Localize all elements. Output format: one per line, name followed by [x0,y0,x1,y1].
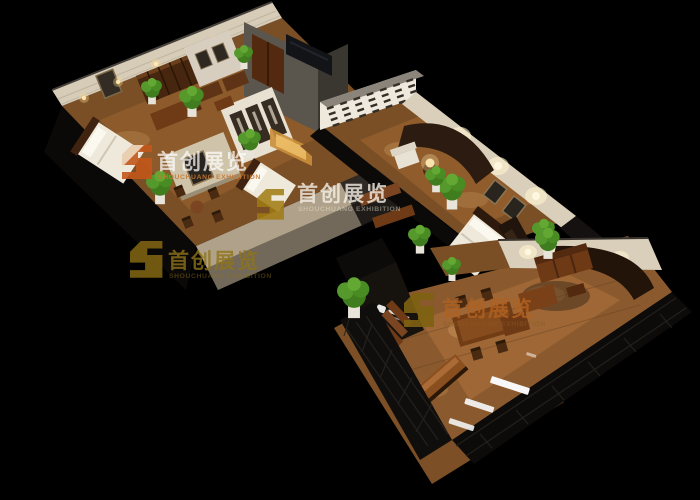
watermark-cn-text: 首创展览 [442,297,534,321]
watermark-lower-center: 首创展览 SHOUCHUANG EXHIBITION [404,293,546,328]
watermark-cn-text: 首创展览 [297,182,389,206]
watermark-en-text: SHOUCHUANG EXHIBITION [169,273,272,280]
watermark-en-text: SHOUCHUANG EXHIBITION [158,174,261,181]
table-lamp-glow [426,159,435,168]
watermark-en-text: SHOUCHUANG EXHIBITION [298,206,401,213]
tea-table [191,201,204,214]
watermark-upper-left: 首创展览 SHOUCHUANG EXHIBITION [122,145,261,181]
watermark-cn-text: 首创展览 [168,249,260,273]
render-canvas: 首创展览 SHOUCHUANG EXHIBITION 首创展览 SHOUCHUA… [0,0,700,500]
watermark-cn-text: 首创展览 [157,150,249,174]
showroom-render: 首创展览 SHOUCHUANG EXHIBITION 首创展览 SHOUCHUA… [0,0,700,500]
watermark-en-text: SHOUCHUANG EXHIBITION [443,321,546,328]
